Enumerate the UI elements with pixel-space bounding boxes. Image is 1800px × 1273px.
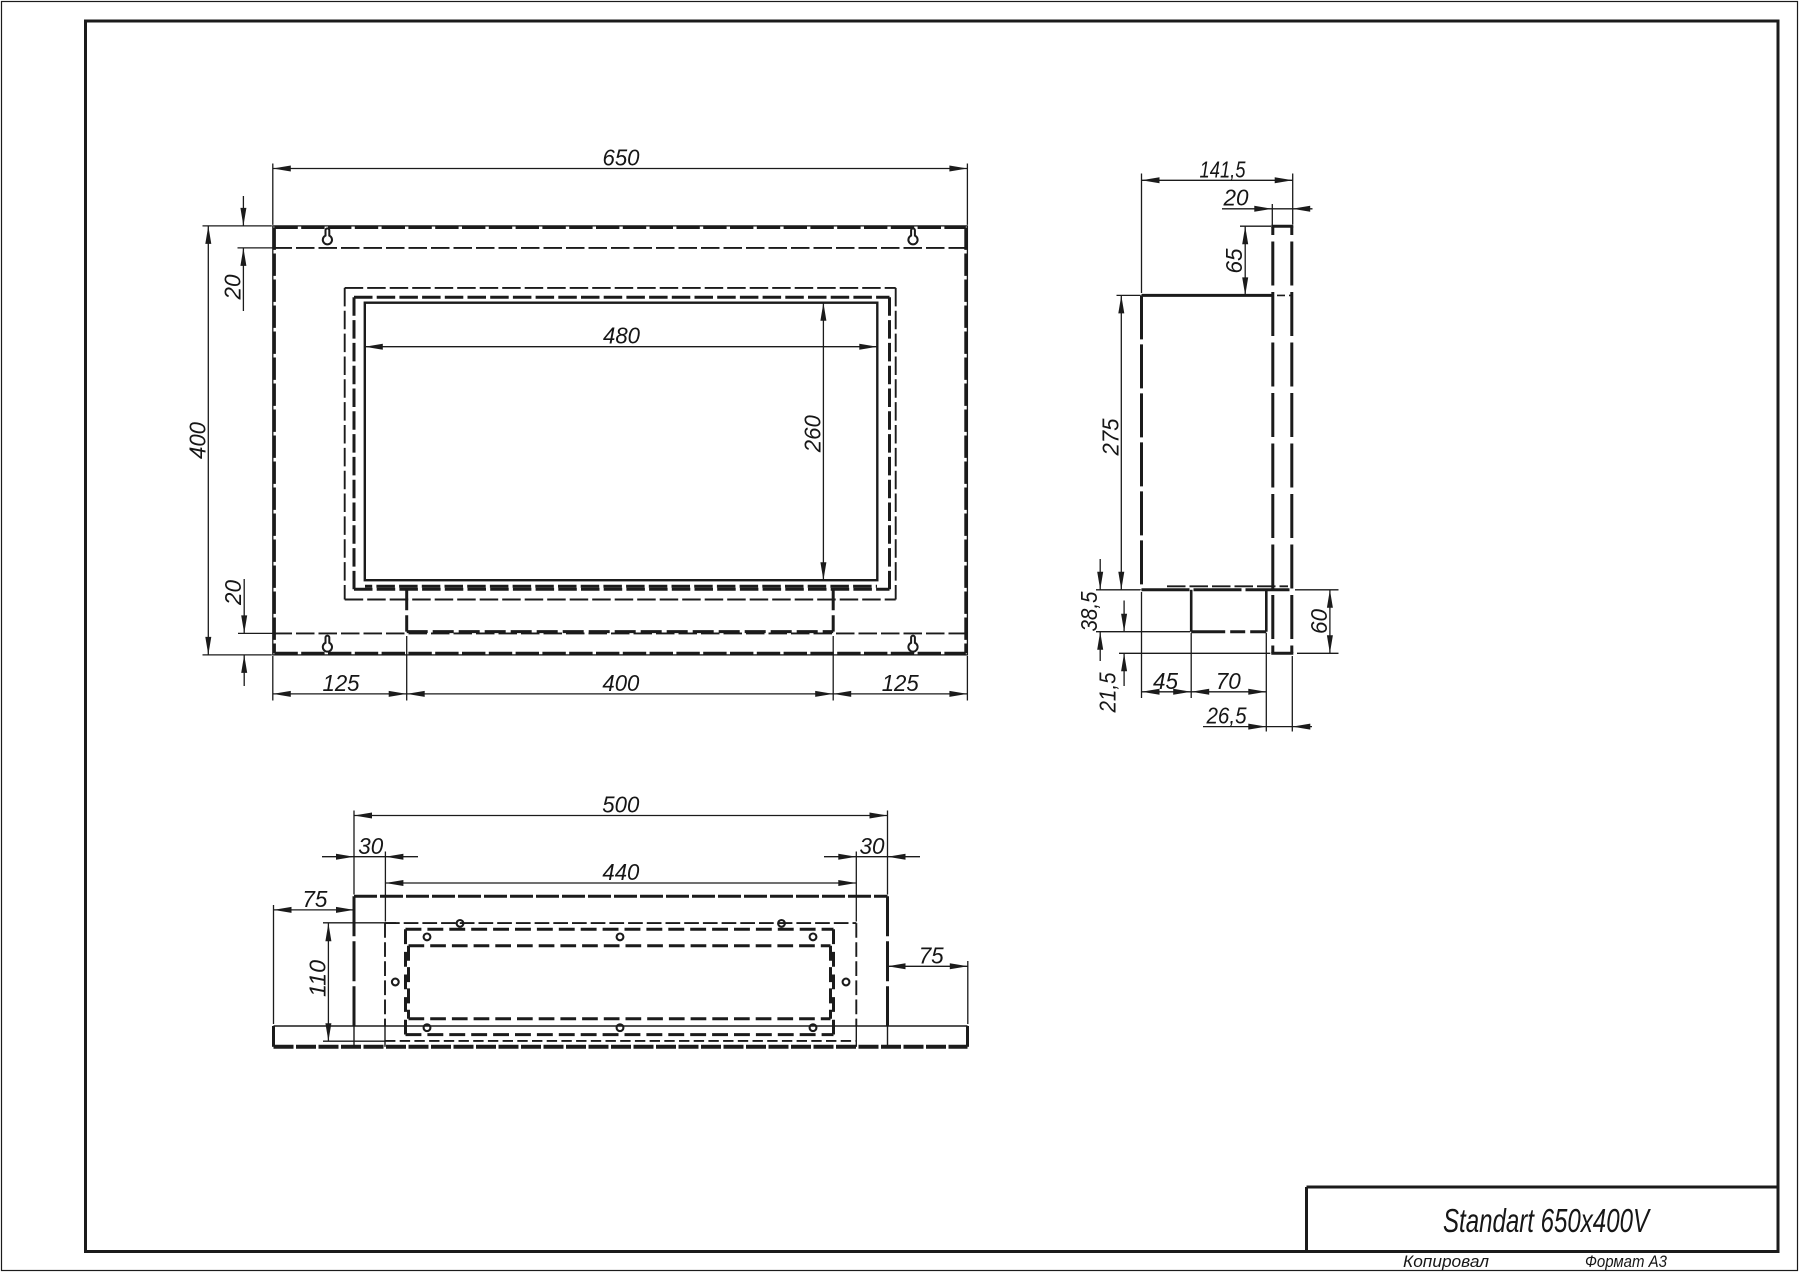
svg-text:260: 260 [799,415,825,453]
svg-text:Копировал: Копировал [1403,1253,1489,1271]
svg-text:275: 275 [1097,418,1123,456]
svg-text:60: 60 [1306,609,1332,634]
svg-text:75: 75 [302,886,327,912]
svg-text:70: 70 [1216,668,1241,694]
svg-text:650: 650 [603,144,640,170]
svg-text:20: 20 [219,274,245,300]
svg-text:400: 400 [602,670,639,696]
svg-text:110: 110 [304,960,330,997]
svg-text:21,5: 21,5 [1095,672,1121,713]
svg-text:26,5: 26,5 [1206,703,1247,729]
svg-text:125: 125 [882,670,919,696]
svg-text:30: 30 [358,833,383,859]
svg-text:400: 400 [184,422,210,459]
svg-text:440: 440 [602,859,639,885]
svg-text:141,5: 141,5 [1200,156,1246,182]
svg-text:500: 500 [602,792,639,818]
svg-text:125: 125 [323,670,360,696]
svg-text:Формат А3: Формат А3 [1585,1253,1668,1271]
svg-text:30: 30 [860,833,885,859]
svg-text:65: 65 [1221,248,1247,273]
svg-text:Standart 650x400V: Standart 650x400V [1443,1202,1651,1239]
svg-text:480: 480 [603,323,640,349]
svg-text:20: 20 [1223,185,1249,211]
svg-text:45: 45 [1153,668,1178,694]
svg-text:38,5: 38,5 [1076,591,1102,631]
svg-text:75: 75 [919,942,944,968]
svg-text:20: 20 [220,580,246,606]
